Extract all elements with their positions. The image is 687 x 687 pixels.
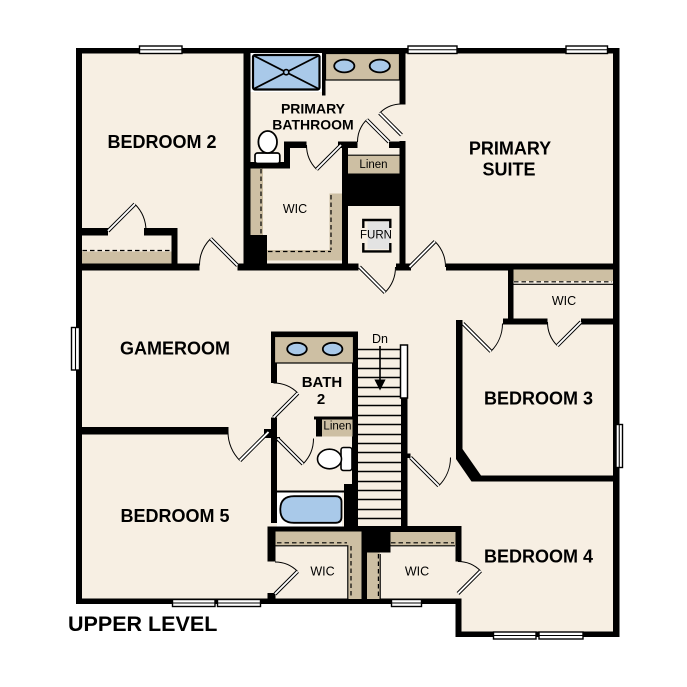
svg-text:FURN: FURN <box>360 230 392 242</box>
svg-text:UPPER LEVEL: UPPER LEVEL <box>68 612 217 636</box>
svg-text:BEDROOM 5: BEDROOM 5 <box>120 506 229 526</box>
svg-text:SUITE: SUITE <box>482 159 535 179</box>
svg-text:PRIMARY: PRIMARY <box>469 138 551 158</box>
svg-text:PRIMARY: PRIMARY <box>281 100 346 116</box>
svg-text:WIC: WIC <box>552 294 576 308</box>
svg-text:Dn: Dn <box>372 332 388 346</box>
svg-text:BEDROOM 3: BEDROOM 3 <box>484 388 593 408</box>
svg-text:WIC: WIC <box>283 202 307 216</box>
svg-text:BATHROOM: BATHROOM <box>272 116 353 132</box>
svg-text:Linen: Linen <box>323 421 351 433</box>
svg-text:Linen: Linen <box>359 159 387 171</box>
svg-text:BATH: BATH <box>302 374 343 391</box>
svg-text:GAMEROOM: GAMEROOM <box>120 338 230 358</box>
svg-text:BEDROOM 2: BEDROOM 2 <box>107 132 216 152</box>
svg-text:BEDROOM 4: BEDROOM 4 <box>484 546 593 566</box>
svg-text:WIC: WIC <box>405 564 429 578</box>
svg-text:2: 2 <box>317 391 325 408</box>
svg-text:WIC: WIC <box>310 564 334 578</box>
